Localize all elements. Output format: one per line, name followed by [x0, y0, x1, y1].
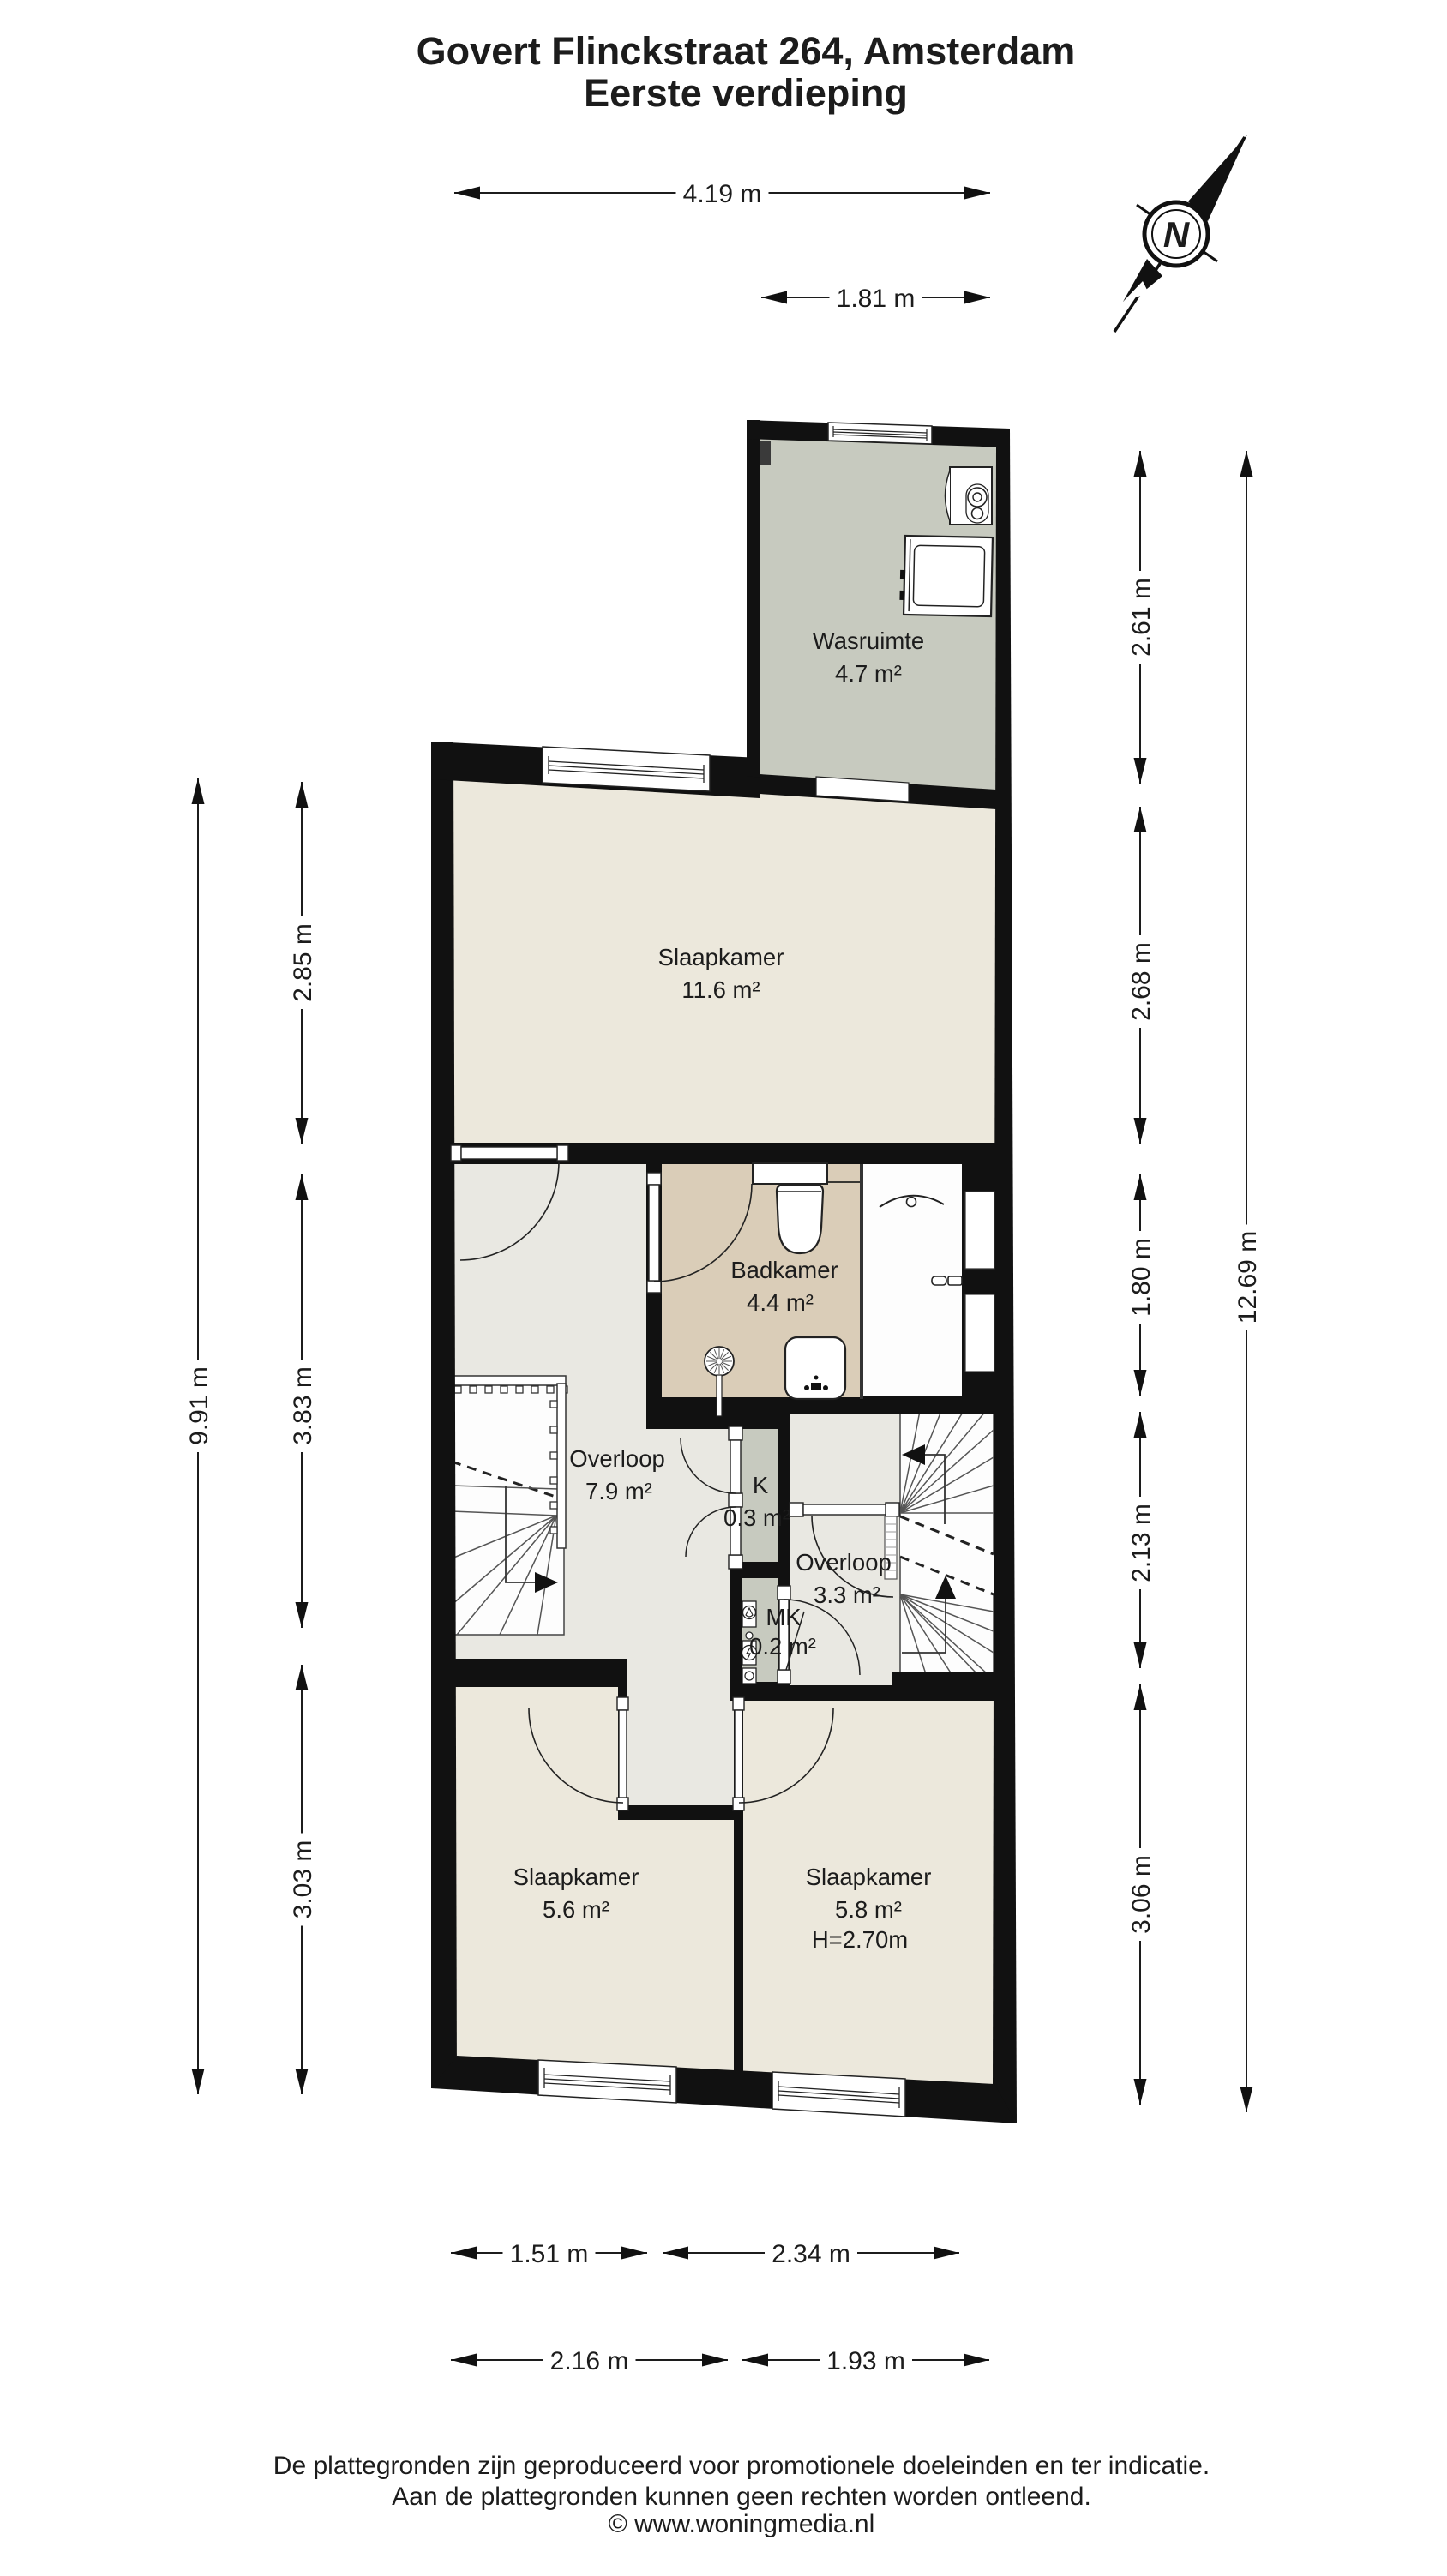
svg-text:9.91 m: 9.91 m [185, 1366, 213, 1445]
svg-text:7.9 m²: 7.9 m² [585, 1478, 652, 1504]
svg-text:3.3 m²: 3.3 m² [814, 1582, 880, 1608]
svg-text:Slaapkamer: Slaapkamer [513, 1864, 639, 1890]
svg-text:3.06 m: 3.06 m [1127, 1855, 1156, 1934]
svg-text:4.7 m²: 4.7 m² [835, 660, 902, 687]
svg-text:Eerste verdieping: Eerste verdieping [584, 71, 908, 115]
svg-text:Slaapkamer: Slaapkamer [806, 1864, 932, 1890]
svg-text:2.61 m: 2.61 m [1127, 578, 1156, 657]
svg-text:0.2 m²: 0.2 m² [749, 1633, 816, 1660]
svg-text:4.4 m²: 4.4 m² [747, 1289, 814, 1316]
svg-text:12.69 m: 12.69 m [1234, 1231, 1262, 1324]
svg-text:3.03 m: 3.03 m [289, 1840, 317, 1919]
svg-text:Govert Flinckstraat 264, Amste: Govert Flinckstraat 264, Amsterdam [417, 29, 1076, 73]
svg-text:Wasruimte: Wasruimte [813, 627, 924, 654]
svg-text:1.93 m: 1.93 m [826, 2347, 905, 2375]
svg-text:0.3 m²: 0.3 m² [723, 1504, 790, 1531]
svg-text:MK: MK [766, 1604, 802, 1630]
svg-text:1.80 m: 1.80 m [1127, 1238, 1156, 1317]
svg-text:K: K [753, 1472, 769, 1498]
svg-text:11.6 m²: 11.6 m² [681, 976, 760, 1003]
svg-text:2.68 m: 2.68 m [1127, 942, 1156, 1021]
svg-text:N: N [1163, 214, 1191, 255]
svg-text:H=2.70m: H=2.70m [812, 1926, 908, 1953]
svg-text:2.16 m: 2.16 m [550, 2347, 629, 2375]
svg-text:2.85 m: 2.85 m [289, 923, 317, 1002]
svg-text:2.13 m: 2.13 m [1127, 1504, 1156, 1582]
svg-text:De plattegronden zijn geproduc: De plattegronden zijn geproduceerd voor … [273, 2452, 1210, 2480]
svg-text:5.8 m²: 5.8 m² [835, 1896, 902, 1923]
svg-text:Overloop: Overloop [569, 1445, 665, 1472]
svg-text:1.51 m: 1.51 m [510, 2240, 589, 2268]
svg-text:2.34 m: 2.34 m [772, 2240, 850, 2268]
svg-text:5.6 m²: 5.6 m² [543, 1896, 609, 1923]
svg-text:Slaapkamer: Slaapkamer [658, 944, 784, 970]
svg-text:1.81 m: 1.81 m [837, 285, 916, 313]
svg-text:© www.woningmedia.nl: © www.woningmedia.nl [609, 2510, 875, 2538]
svg-text:Badkamer: Badkamer [730, 1257, 838, 1283]
svg-text:3.83 m: 3.83 m [289, 1366, 317, 1445]
svg-text:Aan de plattegronden kunnen ge: Aan de plattegronden kunnen geen rechten… [392, 2483, 1091, 2511]
svg-text:Overloop: Overloop [796, 1549, 892, 1576]
svg-text:4.19 m: 4.19 m [683, 180, 762, 208]
